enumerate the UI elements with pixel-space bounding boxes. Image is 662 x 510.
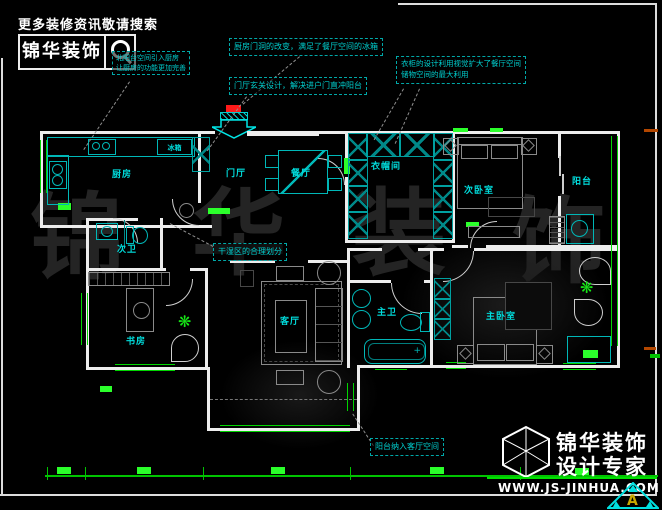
- wall: [345, 240, 455, 243]
- dimension-tick: [203, 467, 204, 480]
- cube-logo-icon: [500, 425, 552, 479]
- tv-cabinet: [468, 226, 520, 238]
- sheet-border-left: [1, 58, 3, 495]
- desk-chair: [133, 302, 150, 319]
- side-table: [276, 266, 304, 281]
- wall: [430, 248, 433, 368]
- window: [347, 383, 354, 411]
- room-label-cloakroom: 衣帽间: [371, 159, 401, 172]
- room-label-second-bedroom: 次卧室: [464, 183, 494, 196]
- wardrobe-cell: [433, 159, 453, 187]
- wall: [558, 131, 561, 158]
- annotation-cloakroom-line1: 衣柜的设计利用视觉扩大了餐厅空间: [401, 59, 521, 70]
- dimension-tick: [85, 467, 86, 480]
- sliding-door-leaf: [562, 174, 564, 194]
- dresser-drawer: [583, 350, 598, 358]
- wall: [40, 131, 215, 134]
- bathtub-inner: +: [368, 343, 425, 360]
- bookshelf: [88, 272, 170, 286]
- edge-mark: [644, 347, 656, 350]
- stove-burner: [92, 142, 100, 150]
- annotation-south-balcony: 阳台纳入客厅空间: [370, 438, 444, 456]
- room-label-study: 书房: [126, 334, 146, 347]
- wardrobe-cell: [434, 318, 451, 340]
- sink-bowl: [52, 164, 63, 175]
- curved-chair: [574, 299, 603, 326]
- sofa: [315, 288, 343, 362]
- door-arc: [166, 279, 193, 306]
- basin-bowl: [101, 226, 113, 237]
- wardrobe-cell: [348, 159, 368, 187]
- wardrobe-cell: [399, 133, 435, 157]
- window: [375, 363, 407, 370]
- header-note-box: 北阳台空间引入厨房 让厨房的功能更加完善: [112, 51, 190, 75]
- washbasin: [352, 310, 371, 329]
- wall: [347, 248, 382, 251]
- wardrobe-cell: [366, 133, 401, 157]
- door-sill: [100, 386, 112, 392]
- sheet-border-top: [398, 3, 657, 5]
- tv-stand: [240, 270, 254, 287]
- toilet-bowl: [400, 314, 422, 331]
- bed-bench: [488, 197, 535, 217]
- wall: [418, 248, 444, 251]
- brand-box: 锦华装饰: [18, 34, 106, 70]
- wardrobe-cell: [434, 298, 451, 320]
- annotation-kitchen-door: 厨房门洞的改变，满足了餐厅空间的冰箱: [229, 38, 383, 56]
- edge-mark: [644, 129, 658, 132]
- dining-chair: [265, 178, 279, 191]
- plant-icon: ❋: [178, 314, 191, 330]
- logo-letter-a: A: [627, 493, 638, 509]
- sink-bowl: [52, 175, 63, 186]
- dining-chair: [328, 178, 342, 191]
- wall: [247, 131, 319, 136]
- bed-blanket: [505, 282, 552, 330]
- pillow: [477, 344, 505, 361]
- wardrobe-cell: [434, 278, 451, 300]
- wall: [86, 218, 138, 221]
- window-seg: [453, 128, 468, 132]
- wall: [347, 280, 391, 283]
- window: [611, 136, 618, 346]
- wardrobe-cell: [433, 211, 453, 239]
- room-label-entry: 门厅: [226, 166, 246, 179]
- removed-wall-dashed: [210, 399, 357, 400]
- edge-mark-green: [650, 354, 660, 358]
- washer-drum: [571, 220, 588, 237]
- wall: [347, 248, 350, 368]
- wardrobe-cell: [348, 185, 368, 213]
- room-label-kitchen: 厨房: [112, 167, 132, 180]
- annotation-cloakroom-line2: 储物空间的最大利用: [401, 70, 521, 81]
- room-label-master-bedroom: 主卧室: [486, 309, 516, 322]
- door-pivot: [179, 203, 194, 218]
- wall: [474, 248, 620, 251]
- sliding-door-leaf: [559, 156, 561, 176]
- bed-headboard: [457, 137, 523, 145]
- header-note-line1: 北阳台空间引入厨房: [116, 53, 186, 63]
- cad-floorplan-screenshot: 锦 华 装 饰 更多装修资讯敬请搜索 锦华装饰 北阳台空间引入厨房 让厨房的功能…: [0, 0, 662, 510]
- header-note-line2: 让厨房的功能更加完善: [116, 63, 186, 73]
- fridge-label: 冰箱: [158, 143, 191, 153]
- plant-icon: ❋: [580, 280, 593, 296]
- room-label-living: 客厅: [280, 314, 300, 327]
- dimension-text-blob: [430, 467, 444, 474]
- annotation-cloakroom: 衣柜的设计利用视觉扩大了餐厅空间 储物空间的最大利用: [396, 56, 526, 84]
- side-table: [276, 370, 304, 385]
- entry-cabinet: [192, 137, 210, 172]
- sheet-border-right: [655, 4, 657, 495]
- wall: [86, 268, 166, 271]
- annotation-wet-dry: 干湿区的合理划分: [213, 243, 287, 261]
- window: [40, 140, 47, 193]
- wall: [452, 245, 468, 248]
- pillow: [491, 145, 518, 159]
- lounge-chair: [171, 334, 199, 362]
- room-label-master-bath: 主卫: [377, 305, 397, 318]
- room-label-second-bath: 次卫: [117, 242, 137, 255]
- bathtub: +: [364, 339, 426, 364]
- pillow: [461, 145, 488, 159]
- window-seg: [490, 128, 503, 132]
- dimension-tick: [350, 467, 351, 480]
- round-chair: [317, 370, 341, 394]
- round-chair: [317, 261, 341, 285]
- fridge-box: 冰箱: [157, 139, 192, 155]
- washbasin: [352, 289, 371, 308]
- room-label-balcony: 阳台: [572, 174, 592, 187]
- dimension-text-blob: [271, 467, 285, 474]
- wall: [160, 218, 163, 271]
- dimension-tick: [47, 467, 48, 480]
- window: [220, 425, 350, 432]
- window: [115, 364, 175, 371]
- dimension-text-blob: [57, 467, 71, 474]
- window: [81, 293, 88, 345]
- stove-burner: [102, 142, 110, 150]
- wardrobe-cell: [433, 185, 453, 213]
- pillow: [506, 344, 534, 361]
- dining-chair: [328, 155, 342, 168]
- dimension-text-blob: [137, 467, 151, 474]
- footer-rule: [487, 477, 657, 479]
- dining-chair: [265, 155, 279, 168]
- door-sill: [208, 208, 230, 214]
- wall: [205, 268, 208, 370]
- wardrobe-cell: [348, 133, 368, 161]
- brand-name: 锦华装饰: [22, 41, 102, 62]
- laundry-cabinet: [549, 216, 565, 244]
- room-label-dining: 餐厅: [291, 166, 311, 179]
- window: [563, 363, 596, 370]
- header-slogan: 更多装修资讯敬请搜索: [18, 14, 158, 33]
- wardrobe-cell: [348, 211, 368, 239]
- annotation-entry-hall: 门厅玄关设计，解决进户门直冲阳台: [229, 77, 367, 95]
- triangle-a-logo: A: [607, 482, 659, 509]
